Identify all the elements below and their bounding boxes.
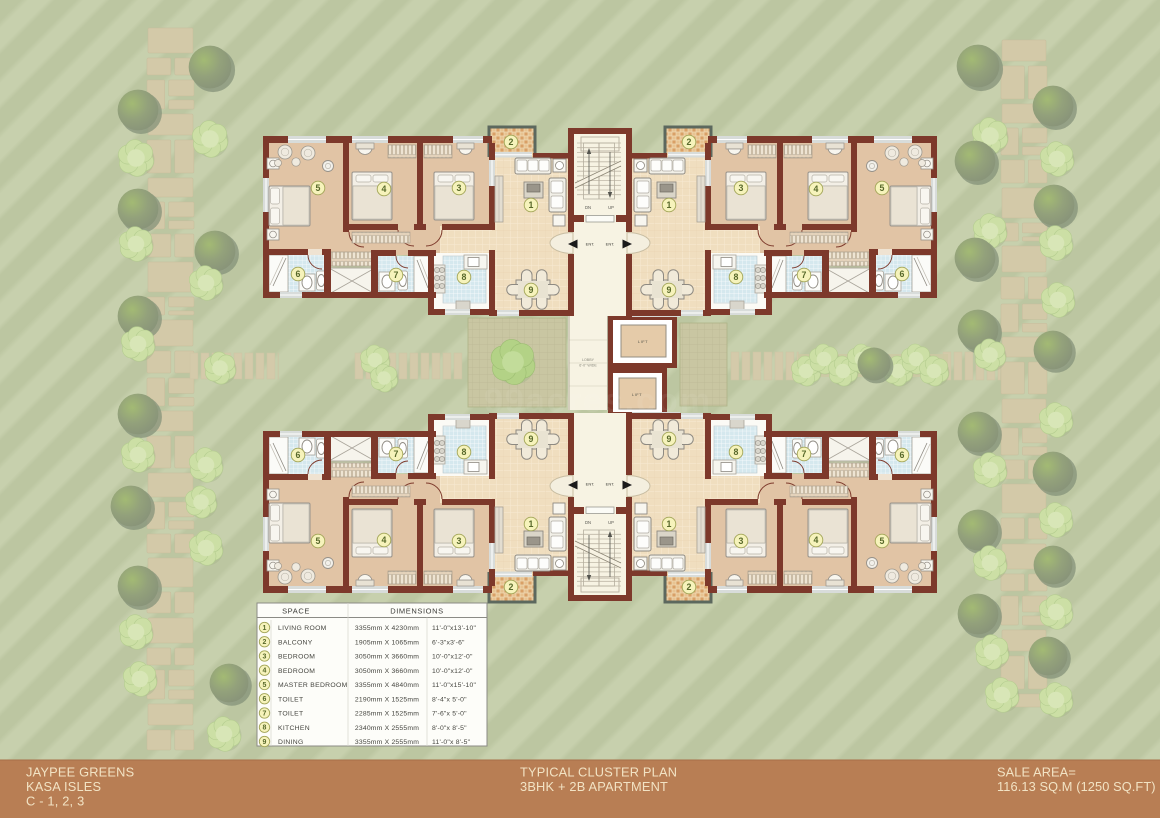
svg-text:6'-0" WIDE: 6'-0" WIDE bbox=[579, 364, 597, 368]
svg-text:UP: UP bbox=[608, 520, 614, 525]
svg-text:1: 1 bbox=[263, 625, 267, 632]
svg-text:4: 4 bbox=[263, 668, 267, 675]
svg-text:5: 5 bbox=[263, 682, 267, 689]
svg-text:2: 2 bbox=[263, 639, 267, 646]
svg-text:116.13 SQ.M (1250 SQ.FT): 116.13 SQ.M (1250 SQ.FT) bbox=[997, 779, 1156, 794]
svg-text:1: 1 bbox=[529, 200, 534, 210]
svg-text:LIFT: LIFT bbox=[638, 339, 648, 344]
svg-text:LIVING ROOM: LIVING ROOM bbox=[278, 625, 327, 632]
svg-text:8: 8 bbox=[734, 272, 739, 282]
svg-text:JAYPEE GREENS: JAYPEE GREENS bbox=[26, 765, 134, 780]
svg-text:2: 2 bbox=[687, 582, 692, 592]
svg-text:8: 8 bbox=[462, 447, 467, 457]
svg-text:TOILET: TOILET bbox=[278, 696, 303, 703]
svg-text:SALE AREA=: SALE AREA= bbox=[997, 765, 1076, 780]
svg-text:10'-0"x12'-0": 10'-0"x12'-0" bbox=[432, 668, 473, 675]
svg-text:11'-0"x 8'-5": 11'-0"x 8'-5" bbox=[432, 739, 471, 746]
svg-text:1905mm X 1065mm: 1905mm X 1065mm bbox=[355, 639, 419, 646]
svg-text:BALCONY: BALCONY bbox=[278, 639, 313, 646]
svg-text:ENT.: ENT. bbox=[586, 482, 595, 487]
svg-text:2: 2 bbox=[687, 137, 692, 147]
svg-text:1: 1 bbox=[667, 519, 672, 529]
svg-text:MASTER BEDROOM: MASTER BEDROOM bbox=[278, 682, 348, 689]
svg-text:7'-6"x 5'-0": 7'-6"x 5'-0" bbox=[432, 711, 467, 718]
svg-text:6: 6 bbox=[296, 269, 301, 279]
svg-text:UP: UP bbox=[608, 205, 614, 210]
svg-text:1: 1 bbox=[667, 200, 672, 210]
svg-text:10'-0"x12'-0": 10'-0"x12'-0" bbox=[432, 654, 473, 661]
svg-text:9: 9 bbox=[529, 285, 534, 295]
svg-text:TOILET: TOILET bbox=[278, 711, 303, 718]
svg-text:ENT.: ENT. bbox=[586, 242, 595, 247]
svg-text:DN: DN bbox=[585, 520, 591, 525]
svg-text:3: 3 bbox=[457, 183, 462, 193]
svg-text:7: 7 bbox=[394, 449, 399, 459]
svg-text:5: 5 bbox=[316, 183, 321, 193]
svg-text:9: 9 bbox=[529, 434, 534, 444]
svg-text:1: 1 bbox=[529, 519, 534, 529]
svg-text:3050mm X 3660mm: 3050mm X 3660mm bbox=[355, 654, 419, 661]
svg-text:6: 6 bbox=[900, 269, 905, 279]
svg-text:ENT.: ENT. bbox=[606, 482, 615, 487]
svg-text:2190mm X 1525mm: 2190mm X 1525mm bbox=[355, 696, 419, 703]
svg-text:3: 3 bbox=[739, 536, 744, 546]
svg-text:7: 7 bbox=[394, 270, 399, 280]
svg-text:LOBBY: LOBBY bbox=[582, 358, 595, 362]
svg-text:99acres.com: 99acres.com bbox=[484, 382, 712, 420]
svg-text:4: 4 bbox=[382, 184, 387, 194]
svg-text:6'-3"x3'-6": 6'-3"x3'-6" bbox=[432, 639, 465, 646]
svg-text:TYPICAL CLUSTER PLAN: TYPICAL CLUSTER PLAN bbox=[520, 765, 677, 780]
svg-text:3: 3 bbox=[739, 183, 744, 193]
svg-text:6: 6 bbox=[263, 696, 267, 703]
svg-text:7: 7 bbox=[802, 270, 807, 280]
svg-text:4: 4 bbox=[814, 184, 819, 194]
svg-text:7: 7 bbox=[263, 710, 267, 717]
svg-text:3: 3 bbox=[263, 653, 267, 660]
svg-text:2: 2 bbox=[509, 137, 514, 147]
svg-text:3: 3 bbox=[457, 536, 462, 546]
svg-text:3355mm X 4840mm: 3355mm X 4840mm bbox=[355, 682, 419, 689]
svg-text:ENT.: ENT. bbox=[606, 242, 615, 247]
svg-text:2: 2 bbox=[509, 582, 514, 592]
svg-text:7: 7 bbox=[802, 449, 807, 459]
svg-text:3BHK + 2B APARTMENT: 3BHK + 2B APARTMENT bbox=[520, 779, 668, 794]
svg-text:8: 8 bbox=[263, 725, 267, 732]
svg-text:5: 5 bbox=[316, 536, 321, 546]
svg-text:4: 4 bbox=[814, 535, 819, 545]
svg-text:9: 9 bbox=[667, 285, 672, 295]
svg-text:DINING: DINING bbox=[278, 739, 304, 746]
svg-text:C - 1, 2, 3: C - 1, 2, 3 bbox=[26, 794, 84, 809]
svg-text:9: 9 bbox=[263, 739, 267, 746]
svg-text:6: 6 bbox=[296, 450, 301, 460]
svg-text:2285mm X 1525mm: 2285mm X 1525mm bbox=[355, 711, 419, 718]
svg-text:BEDROOM: BEDROOM bbox=[278, 654, 315, 661]
svg-text:KASA ISLES: KASA ISLES bbox=[26, 779, 101, 794]
svg-text:4: 4 bbox=[382, 535, 387, 545]
svg-text:DN: DN bbox=[585, 205, 591, 210]
svg-text:8'-0"x 8'-5": 8'-0"x 8'-5" bbox=[432, 725, 467, 732]
svg-text:DIMENSIONS: DIMENSIONS bbox=[390, 607, 444, 616]
svg-text:6: 6 bbox=[900, 450, 905, 460]
svg-text:5: 5 bbox=[880, 183, 885, 193]
svg-text:BEDROOM: BEDROOM bbox=[278, 668, 315, 675]
svg-text:KITCHEN: KITCHEN bbox=[278, 725, 310, 732]
svg-text:11'-0"x15'-10": 11'-0"x15'-10" bbox=[432, 682, 476, 689]
svg-text:8'-4"x 5'-0": 8'-4"x 5'-0" bbox=[432, 696, 467, 703]
svg-text:3050mm X 3660mm: 3050mm X 3660mm bbox=[355, 668, 419, 675]
svg-text:8: 8 bbox=[734, 447, 739, 457]
svg-text:2340mm X 2555mm: 2340mm X 2555mm bbox=[355, 725, 419, 732]
svg-text:3355mm X 2555mm: 3355mm X 2555mm bbox=[355, 739, 419, 746]
svg-text:5: 5 bbox=[880, 536, 885, 546]
svg-text:8: 8 bbox=[462, 272, 467, 282]
svg-text:SPACE: SPACE bbox=[282, 607, 310, 616]
svg-text:3355mm X 4230mm: 3355mm X 4230mm bbox=[355, 625, 419, 632]
svg-text:11'-0"x13'-10": 11'-0"x13'-10" bbox=[432, 625, 476, 632]
svg-text:9: 9 bbox=[667, 434, 672, 444]
